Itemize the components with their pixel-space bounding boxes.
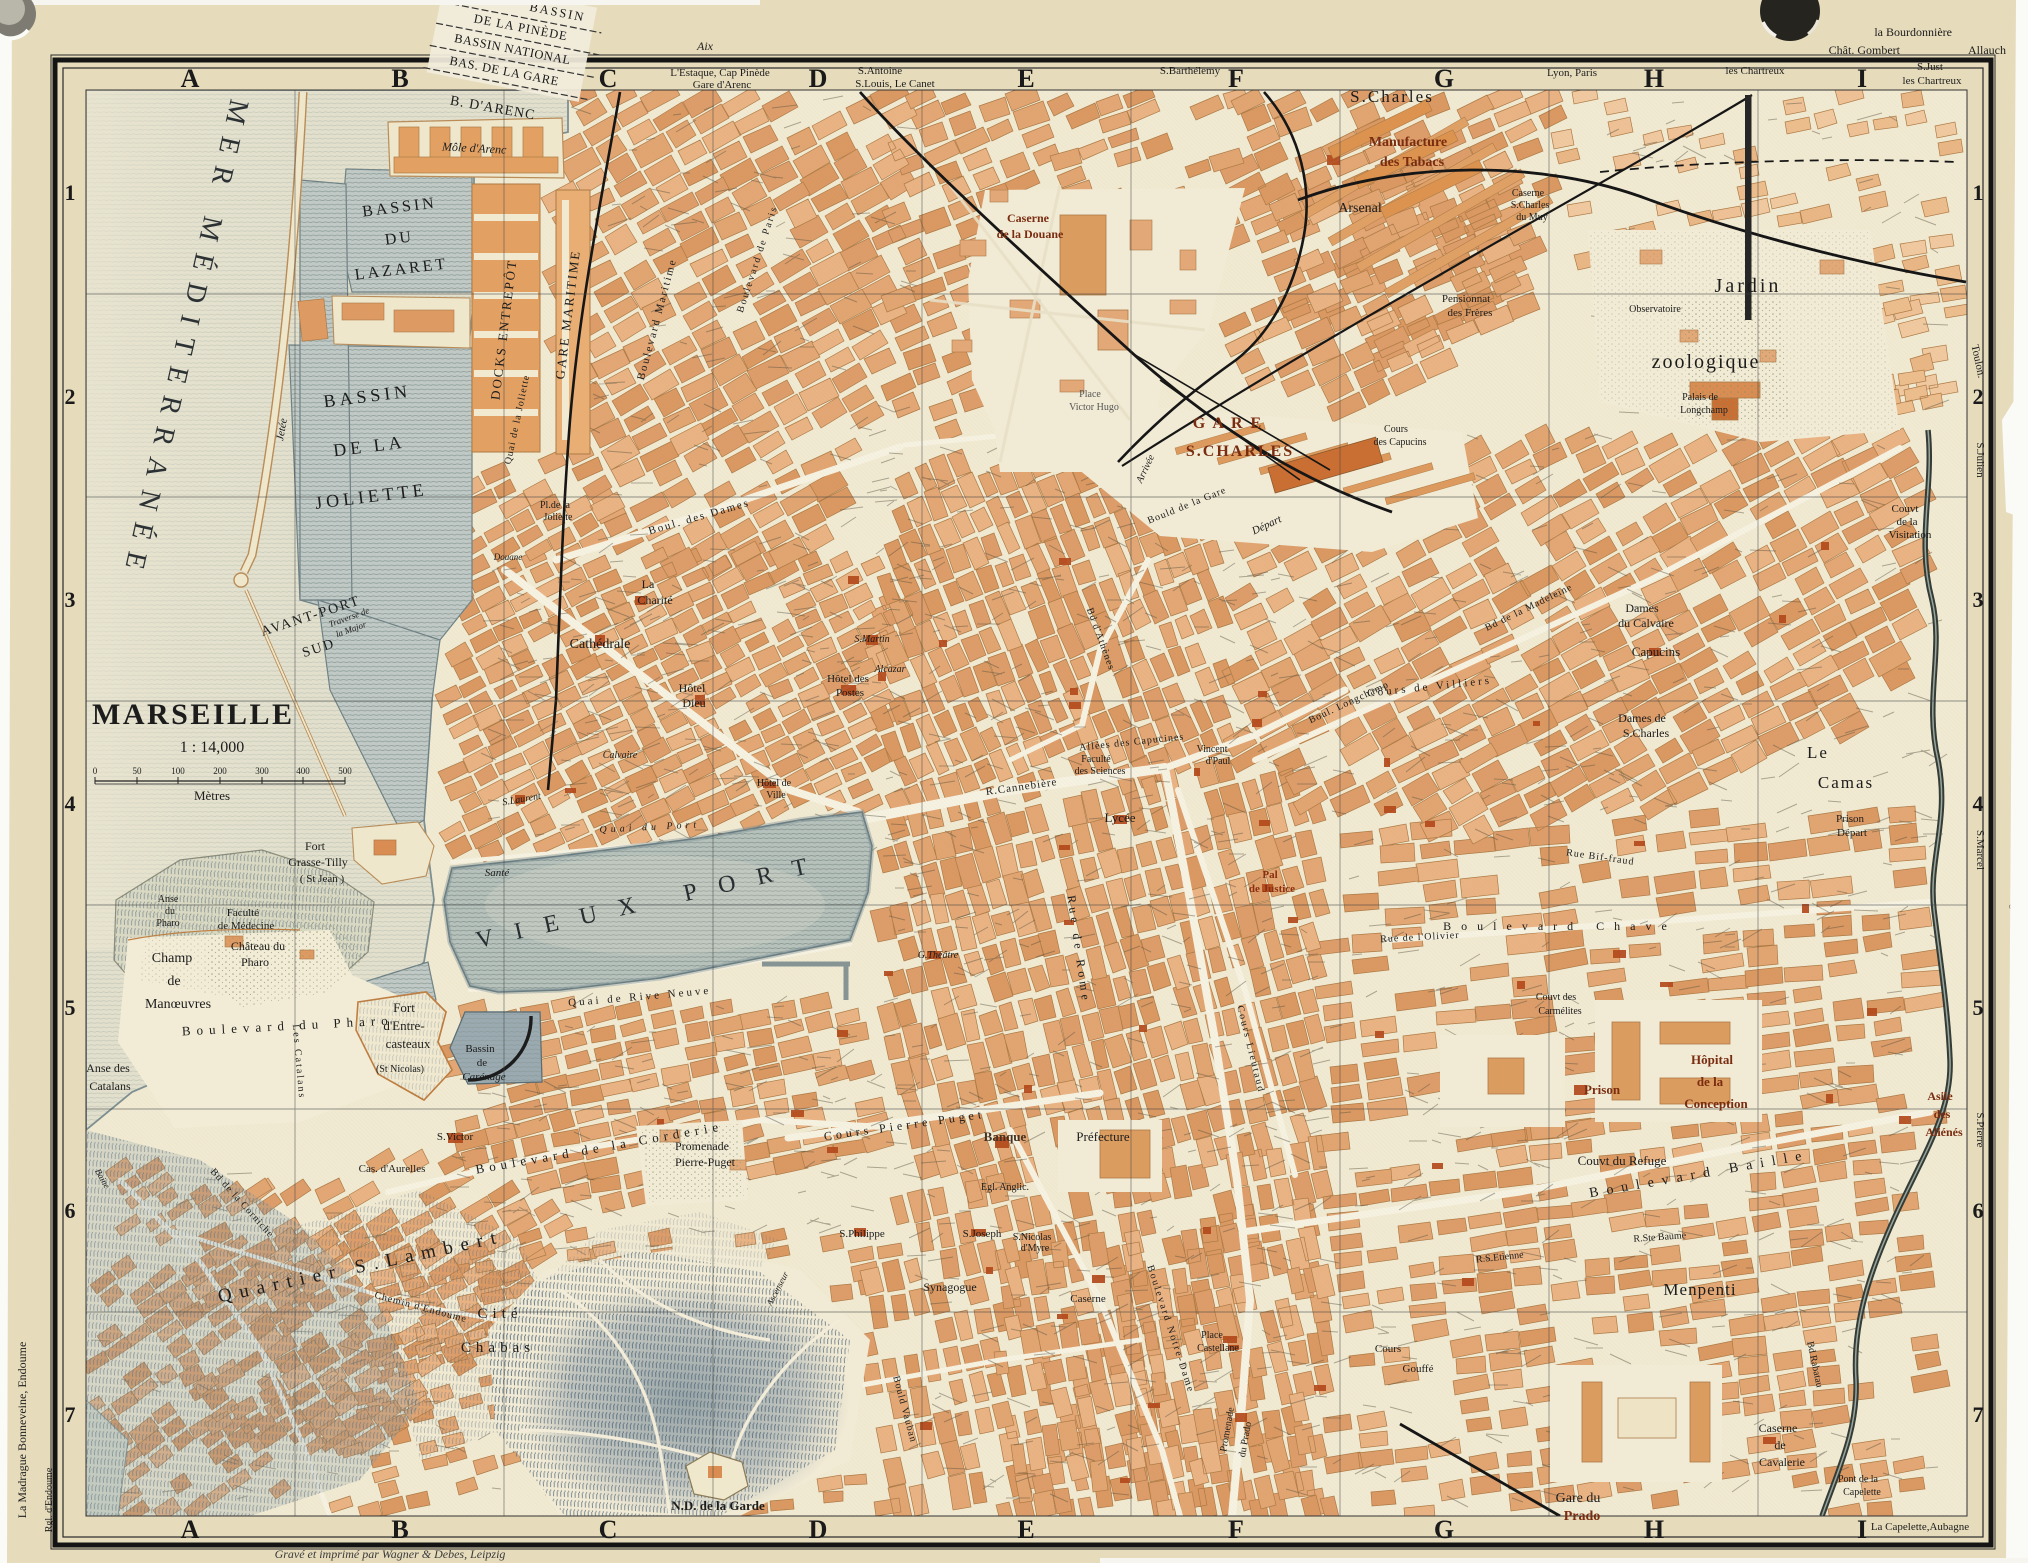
- svg-text:D: D: [809, 64, 828, 93]
- svg-text:Pierre-Puget: Pierre-Puget: [675, 1155, 736, 1169]
- svg-text:La: La: [642, 577, 655, 591]
- svg-text:Pharo: Pharo: [241, 955, 269, 969]
- svg-text:G A R E: G A R E: [1193, 415, 1263, 432]
- svg-text:Visitation: Visitation: [1889, 529, 1932, 541]
- svg-text:300: 300: [255, 766, 269, 776]
- svg-text:Cours: Cours: [1384, 424, 1408, 435]
- svg-text:Santé: Santé: [485, 867, 511, 879]
- svg-text:4: 4: [1973, 791, 1984, 816]
- svg-text:6: 6: [65, 1198, 76, 1223]
- svg-text:Gare du: Gare du: [1556, 1491, 1601, 1506]
- svg-text:Aliénés: Aliénés: [1925, 1125, 1963, 1139]
- svg-text:Conception: Conception: [1684, 1096, 1748, 1111]
- svg-text:Cathédrale: Cathédrale: [570, 637, 631, 652]
- svg-text:S.Nicolas: S.Nicolas: [1013, 1232, 1052, 1243]
- svg-text:(St Nicolas): (St Nicolas): [376, 1064, 424, 1075]
- svg-text:Dames: Dames: [1625, 601, 1659, 615]
- svg-text:Fort: Fort: [393, 1000, 415, 1015]
- svg-text:Bassin: Bassin: [465, 1043, 495, 1055]
- svg-text:du: du: [165, 906, 175, 917]
- svg-text:Départ: Départ: [1837, 827, 1867, 839]
- svg-text:Pal: Pal: [1262, 869, 1277, 881]
- svg-text:Carénage: Carénage: [462, 1071, 506, 1083]
- svg-text:Chât. Gombert: Chât. Gombert: [1829, 43, 1901, 57]
- svg-text:C: C: [599, 1515, 618, 1544]
- svg-text:S.Louis, Le Canet: S.Louis, Le Canet: [855, 78, 934, 90]
- svg-text:Pharo: Pharo: [156, 918, 179, 929]
- svg-text:les Chartreux: les Chartreux: [1726, 65, 1785, 77]
- svg-text:Catalans: Catalans: [89, 1079, 131, 1093]
- svg-text:Capucins: Capucins: [1632, 644, 1680, 659]
- svg-text:Préfecture: Préfecture: [1076, 1129, 1130, 1144]
- svg-text:4: 4: [65, 791, 76, 816]
- svg-text:Faculté: Faculté: [227, 907, 259, 919]
- svg-text:S.Victor: S.Victor: [437, 1131, 474, 1143]
- svg-text:Hôpital: Hôpital: [1691, 1052, 1733, 1067]
- svg-text:Asile: Asile: [1927, 1089, 1953, 1103]
- svg-text:5: 5: [65, 995, 76, 1020]
- svg-text:Grasse-Tilly: Grasse-Tilly: [288, 855, 348, 869]
- svg-text:Egl. Anglic.: Egl. Anglic.: [981, 1182, 1029, 1193]
- svg-text:Camas: Camas: [1818, 773, 1874, 792]
- svg-text:Anse: Anse: [158, 894, 179, 905]
- svg-text:Couvt: Couvt: [1892, 503, 1919, 515]
- svg-text:1 : 14,000: 1 : 14,000: [180, 739, 244, 756]
- svg-text:Longchamp: Longchamp: [1680, 405, 1728, 416]
- svg-text:des Sciences: des Sciences: [1075, 766, 1126, 777]
- svg-text:Caserne: Caserne: [1007, 211, 1050, 225]
- svg-text:3: 3: [1973, 587, 1984, 612]
- svg-text:( St Jean ): ( St Jean ): [300, 873, 345, 885]
- svg-text:Lyon, Paris: Lyon, Paris: [1547, 67, 1597, 79]
- svg-text:B: B: [391, 1515, 408, 1544]
- svg-text:Alcazar: Alcazar: [873, 664, 905, 675]
- svg-text:400: 400: [296, 766, 310, 776]
- svg-text:Couvt du Refuge: Couvt du Refuge: [1578, 1153, 1667, 1168]
- svg-text:Château du: Château du: [231, 939, 285, 953]
- svg-text:I: I: [1857, 64, 1867, 93]
- svg-text:MARSEILLE: MARSEILLE: [92, 698, 295, 731]
- svg-text:Anse des: Anse des: [86, 1061, 130, 1075]
- svg-text:Menpenti: Menpenti: [1663, 1280, 1736, 1299]
- svg-text:Castellane: Castellane: [1197, 1343, 1239, 1354]
- svg-text:S.CHARLES: S.CHARLES: [1186, 443, 1294, 460]
- svg-text:Mètres: Mètres: [194, 788, 230, 803]
- svg-text:5: 5: [1973, 995, 1984, 1020]
- svg-text:des Tabacs: des Tabacs: [1380, 155, 1445, 170]
- svg-text:Boulevard Chave: Boulevard Chave: [1443, 919, 1677, 933]
- svg-text:Joliette: Joliette: [544, 512, 573, 523]
- svg-text:S.Charles: S.Charles: [1511, 200, 1550, 211]
- svg-text:La Capelette,Aubagne: La Capelette,Aubagne: [1871, 1521, 1969, 1533]
- svg-text:Couvt des: Couvt des: [1536, 992, 1576, 1003]
- svg-text:Caserne: Caserne: [1070, 1293, 1106, 1305]
- svg-text:Pont de la: Pont de la: [1838, 1474, 1879, 1485]
- svg-text:de Médecine: de Médecine: [218, 920, 275, 932]
- svg-text:des: des: [1934, 1107, 1951, 1121]
- svg-text:E: E: [1017, 1515, 1034, 1544]
- svg-text:L'Estaque, Cap Pinède: L'Estaque, Cap Pinède: [670, 67, 770, 79]
- svg-text:de la: de la: [1896, 516, 1917, 528]
- svg-text:Capelette: Capelette: [1843, 1487, 1881, 1498]
- svg-text:A: A: [181, 64, 200, 93]
- svg-text:Caserne: Caserne: [1512, 188, 1545, 199]
- svg-text:casteaux: casteaux: [386, 1036, 431, 1051]
- svg-text:Place: Place: [1079, 389, 1101, 400]
- svg-text:Calvaire: Calvaire: [603, 750, 638, 761]
- svg-text:des Frères: des Frères: [1448, 307, 1493, 319]
- svg-text:zoologique: zoologique: [1652, 351, 1761, 373]
- svg-text:Cavalerie: Cavalerie: [1759, 1455, 1805, 1469]
- svg-text:Cours: Cours: [1375, 1343, 1401, 1355]
- svg-text:Observatoire: Observatoire: [1629, 304, 1681, 315]
- svg-text:H: H: [1644, 64, 1664, 93]
- svg-text:Cité: Cité: [478, 1306, 523, 1322]
- svg-text:Carmélites: Carmélites: [1538, 1006, 1581, 1017]
- svg-text:Le: Le: [1807, 743, 1829, 762]
- svg-text:de la Douane: de la Douane: [997, 227, 1064, 241]
- svg-text:6: 6: [1973, 1198, 1984, 1223]
- svg-text:S.Charles: S.Charles: [1350, 87, 1434, 106]
- svg-text:1: 1: [65, 180, 76, 205]
- svg-text:de: de: [477, 1057, 488, 1069]
- svg-text:S.Philippe: S.Philippe: [839, 1228, 885, 1240]
- svg-text:DU: DU: [384, 228, 415, 248]
- svg-text:les Chartreux: les Chartreux: [1903, 75, 1962, 87]
- svg-text:Chabas: Chabas: [461, 1340, 535, 1356]
- svg-text:B: B: [391, 64, 408, 93]
- svg-text:Promenade: Promenade: [675, 1139, 729, 1153]
- svg-text:d'Paul: d'Paul: [1206, 756, 1231, 767]
- svg-text:7: 7: [1973, 1402, 1984, 1427]
- svg-text:La Madrague Bonneveine, Endoum: La Madrague Bonneveine, Endoume: [15, 1342, 29, 1519]
- svg-text:Gare d'Arenc: Gare d'Arenc: [693, 79, 752, 91]
- svg-text:de: de: [1774, 1438, 1785, 1452]
- svg-text:du Calvaire: du Calvaire: [1618, 616, 1674, 630]
- svg-text:Place: Place: [1201, 1330, 1223, 1341]
- svg-text:Hôtel de: Hôtel de: [757, 778, 792, 789]
- svg-text:Hôtel: Hôtel: [679, 681, 706, 695]
- svg-text:d'Myre: d'Myre: [1021, 1243, 1050, 1254]
- svg-text:Fort: Fort: [305, 839, 326, 853]
- svg-text:Prison: Prison: [1584, 1082, 1621, 1097]
- svg-text:S.Marcel: S.Marcel: [1974, 830, 1986, 870]
- svg-text:Manufacture: Manufacture: [1369, 135, 1447, 150]
- svg-text:S.Antoine: S.Antoine: [858, 65, 902, 77]
- svg-text:Charité: Charité: [637, 593, 672, 607]
- svg-text:Ville: Ville: [766, 790, 786, 801]
- svg-text:Arsenal: Arsenal: [1338, 201, 1382, 216]
- svg-text:I: I: [1857, 1515, 1867, 1544]
- svg-text:E: E: [1017, 64, 1034, 93]
- svg-text:A: A: [181, 1515, 200, 1544]
- svg-text:G.Théâtre: G.Théâtre: [918, 950, 959, 961]
- svg-text:Dames de: Dames de: [1618, 711, 1666, 725]
- svg-text:7: 7: [65, 1402, 76, 1427]
- svg-text:Synagogue: Synagogue: [923, 1280, 976, 1294]
- svg-text:Victor Hugo: Victor Hugo: [1069, 402, 1119, 413]
- svg-text:Aix: Aix: [696, 39, 714, 53]
- svg-text:S.Barthélemy: S.Barthélemy: [1160, 65, 1221, 77]
- svg-text:F: F: [1228, 1515, 1244, 1544]
- svg-text:Rgl. d'Endoume: Rgl. d'Endoume: [44, 1467, 55, 1532]
- svg-text:2: 2: [1973, 384, 1984, 409]
- svg-text:Douane: Douane: [493, 552, 523, 562]
- svg-text:Pensionnat: Pensionnat: [1442, 293, 1490, 305]
- svg-text:100: 100: [171, 766, 185, 776]
- svg-text:Postes: Postes: [836, 687, 864, 699]
- svg-text:0: 0: [93, 766, 98, 776]
- svg-text:Prison: Prison: [1836, 813, 1865, 825]
- svg-text:200: 200: [213, 766, 227, 776]
- svg-text:D: D: [809, 1515, 828, 1544]
- svg-text:Jardin: Jardin: [1715, 275, 1782, 297]
- svg-text:C: C: [599, 64, 618, 93]
- svg-text:du Muy: du Muy: [1516, 212, 1547, 223]
- svg-text:500: 500: [338, 766, 352, 776]
- svg-text:2: 2: [65, 384, 76, 409]
- svg-text:Manœuvres: Manœuvres: [145, 997, 211, 1012]
- svg-text:Champ: Champ: [152, 951, 192, 966]
- svg-text:H: H: [1644, 1515, 1664, 1544]
- svg-text:Hôtel des: Hôtel des: [827, 673, 869, 685]
- svg-text:S.Julien: S.Julien: [1974, 442, 1986, 478]
- svg-text:la Bourdonnière: la Bourdonnière: [1874, 25, 1952, 39]
- svg-text:S.Martin: S.Martin: [854, 634, 889, 645]
- svg-text:G: G: [1434, 1515, 1454, 1544]
- svg-text:de: de: [167, 974, 180, 989]
- svg-text:1: 1: [1973, 180, 1984, 205]
- svg-text:50: 50: [133, 766, 143, 776]
- svg-text:Allauch: Allauch: [1968, 43, 2006, 57]
- svg-text:G: G: [1434, 64, 1454, 93]
- svg-text:Caserne: Caserne: [1759, 1421, 1798, 1435]
- svg-text:Lycée: Lycée: [1104, 810, 1135, 825]
- svg-text:Cas. d'Aurelles: Cas. d'Aurelles: [359, 1163, 426, 1175]
- svg-text:S.Just: S.Just: [1917, 61, 1943, 73]
- svg-text:S.Charles: S.Charles: [1623, 726, 1670, 740]
- svg-text:Pl.de la: Pl.de la: [540, 500, 571, 511]
- svg-text:Vincent: Vincent: [1196, 744, 1227, 755]
- svg-text:S.Pierre: S.Pierre: [1974, 1112, 1986, 1147]
- svg-text:Gouffé: Gouffé: [1403, 1363, 1434, 1375]
- svg-text:de la: de la: [1697, 1074, 1724, 1089]
- svg-text:Faculté: Faculté: [1081, 754, 1111, 765]
- svg-text:Banque: Banque: [984, 1129, 1027, 1144]
- svg-text:Prado: Prado: [1564, 1509, 1601, 1524]
- svg-text:des Capucins: des Capucins: [1373, 437, 1426, 448]
- svg-text:Palais de: Palais de: [1682, 392, 1718, 403]
- svg-text:3: 3: [65, 587, 76, 612]
- svg-text:N.D. de la Garde: N.D. de la Garde: [671, 1498, 765, 1513]
- svg-text:de Justice: de Justice: [1249, 883, 1295, 895]
- svg-text:Gravé et imprimé par Wagner &: Gravé et imprimé par Wagner & Debes, Lei…: [275, 1547, 506, 1561]
- svg-text:Dieu: Dieu: [682, 696, 705, 710]
- svg-text:S.Joseph: S.Joseph: [963, 1228, 1002, 1240]
- svg-text:F: F: [1228, 64, 1244, 93]
